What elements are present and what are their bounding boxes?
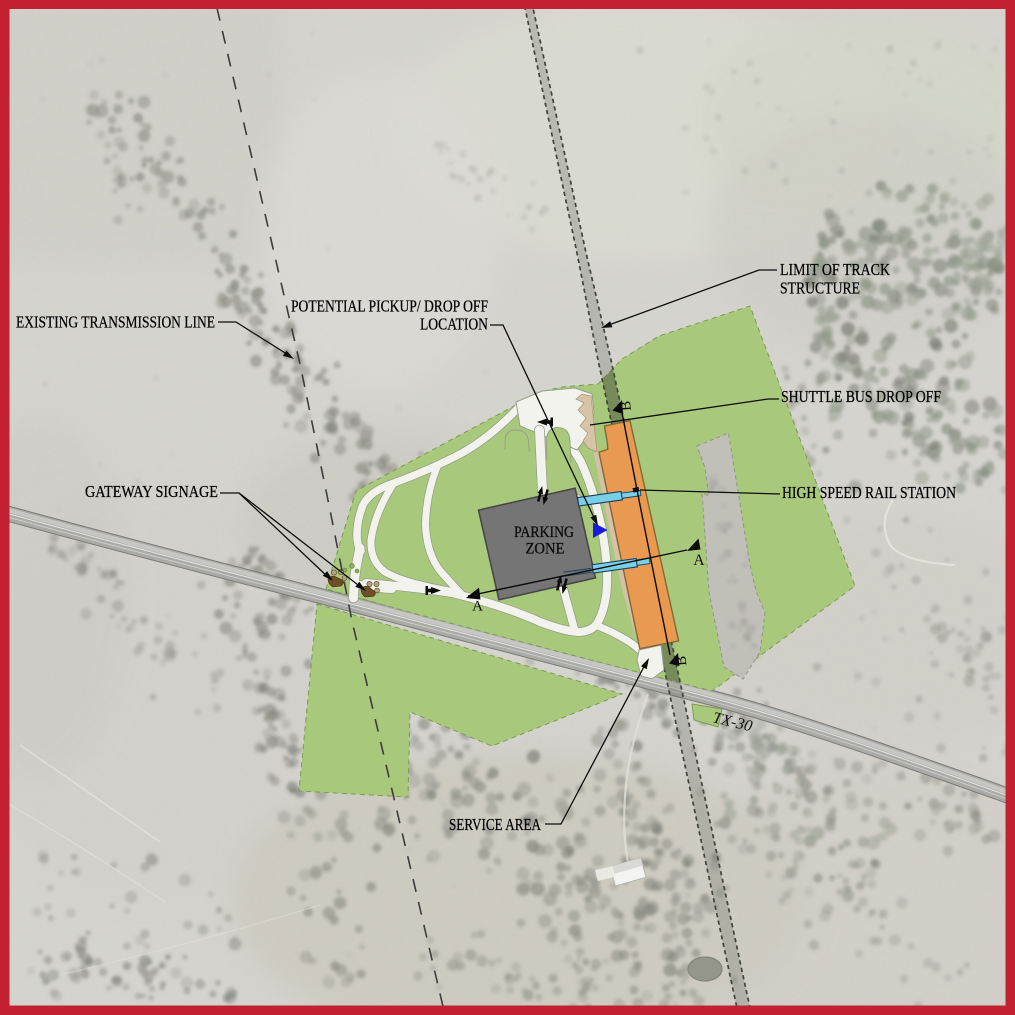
- svg-text:PARKING: PARKING: [514, 524, 574, 541]
- svg-text:LOCATION: LOCATION: [420, 315, 488, 334]
- svg-text:SHUTTLE BUS DROP OFF: SHUTTLE BUS DROP OFF: [781, 387, 941, 406]
- svg-text:LIMIT OF TRACK: LIMIT OF TRACK: [780, 260, 890, 279]
- svg-text:ZONE: ZONE: [526, 541, 565, 558]
- svg-text:STRUCTURE: STRUCTURE: [780, 279, 860, 298]
- svg-text:A: A: [472, 599, 483, 615]
- svg-text:SERVICE AREA: SERVICE AREA: [449, 815, 541, 834]
- svg-text:EXISTING TRANSMISSION LINE: EXISTING TRANSMISSION LINE: [16, 313, 215, 332]
- svg-text:B: B: [618, 400, 635, 411]
- svg-text:HIGH SPEED RAIL STATION: HIGH SPEED RAIL STATION: [782, 483, 956, 502]
- svg-text:GATEWAY SIGNAGE: GATEWAY SIGNAGE: [85, 482, 218, 501]
- svg-text:A: A: [693, 552, 705, 569]
- svg-text:B: B: [674, 655, 691, 666]
- svg-text:POTENTIAL PICKUP/ DROP OFF: POTENTIAL PICKUP/ DROP OFF: [291, 297, 488, 316]
